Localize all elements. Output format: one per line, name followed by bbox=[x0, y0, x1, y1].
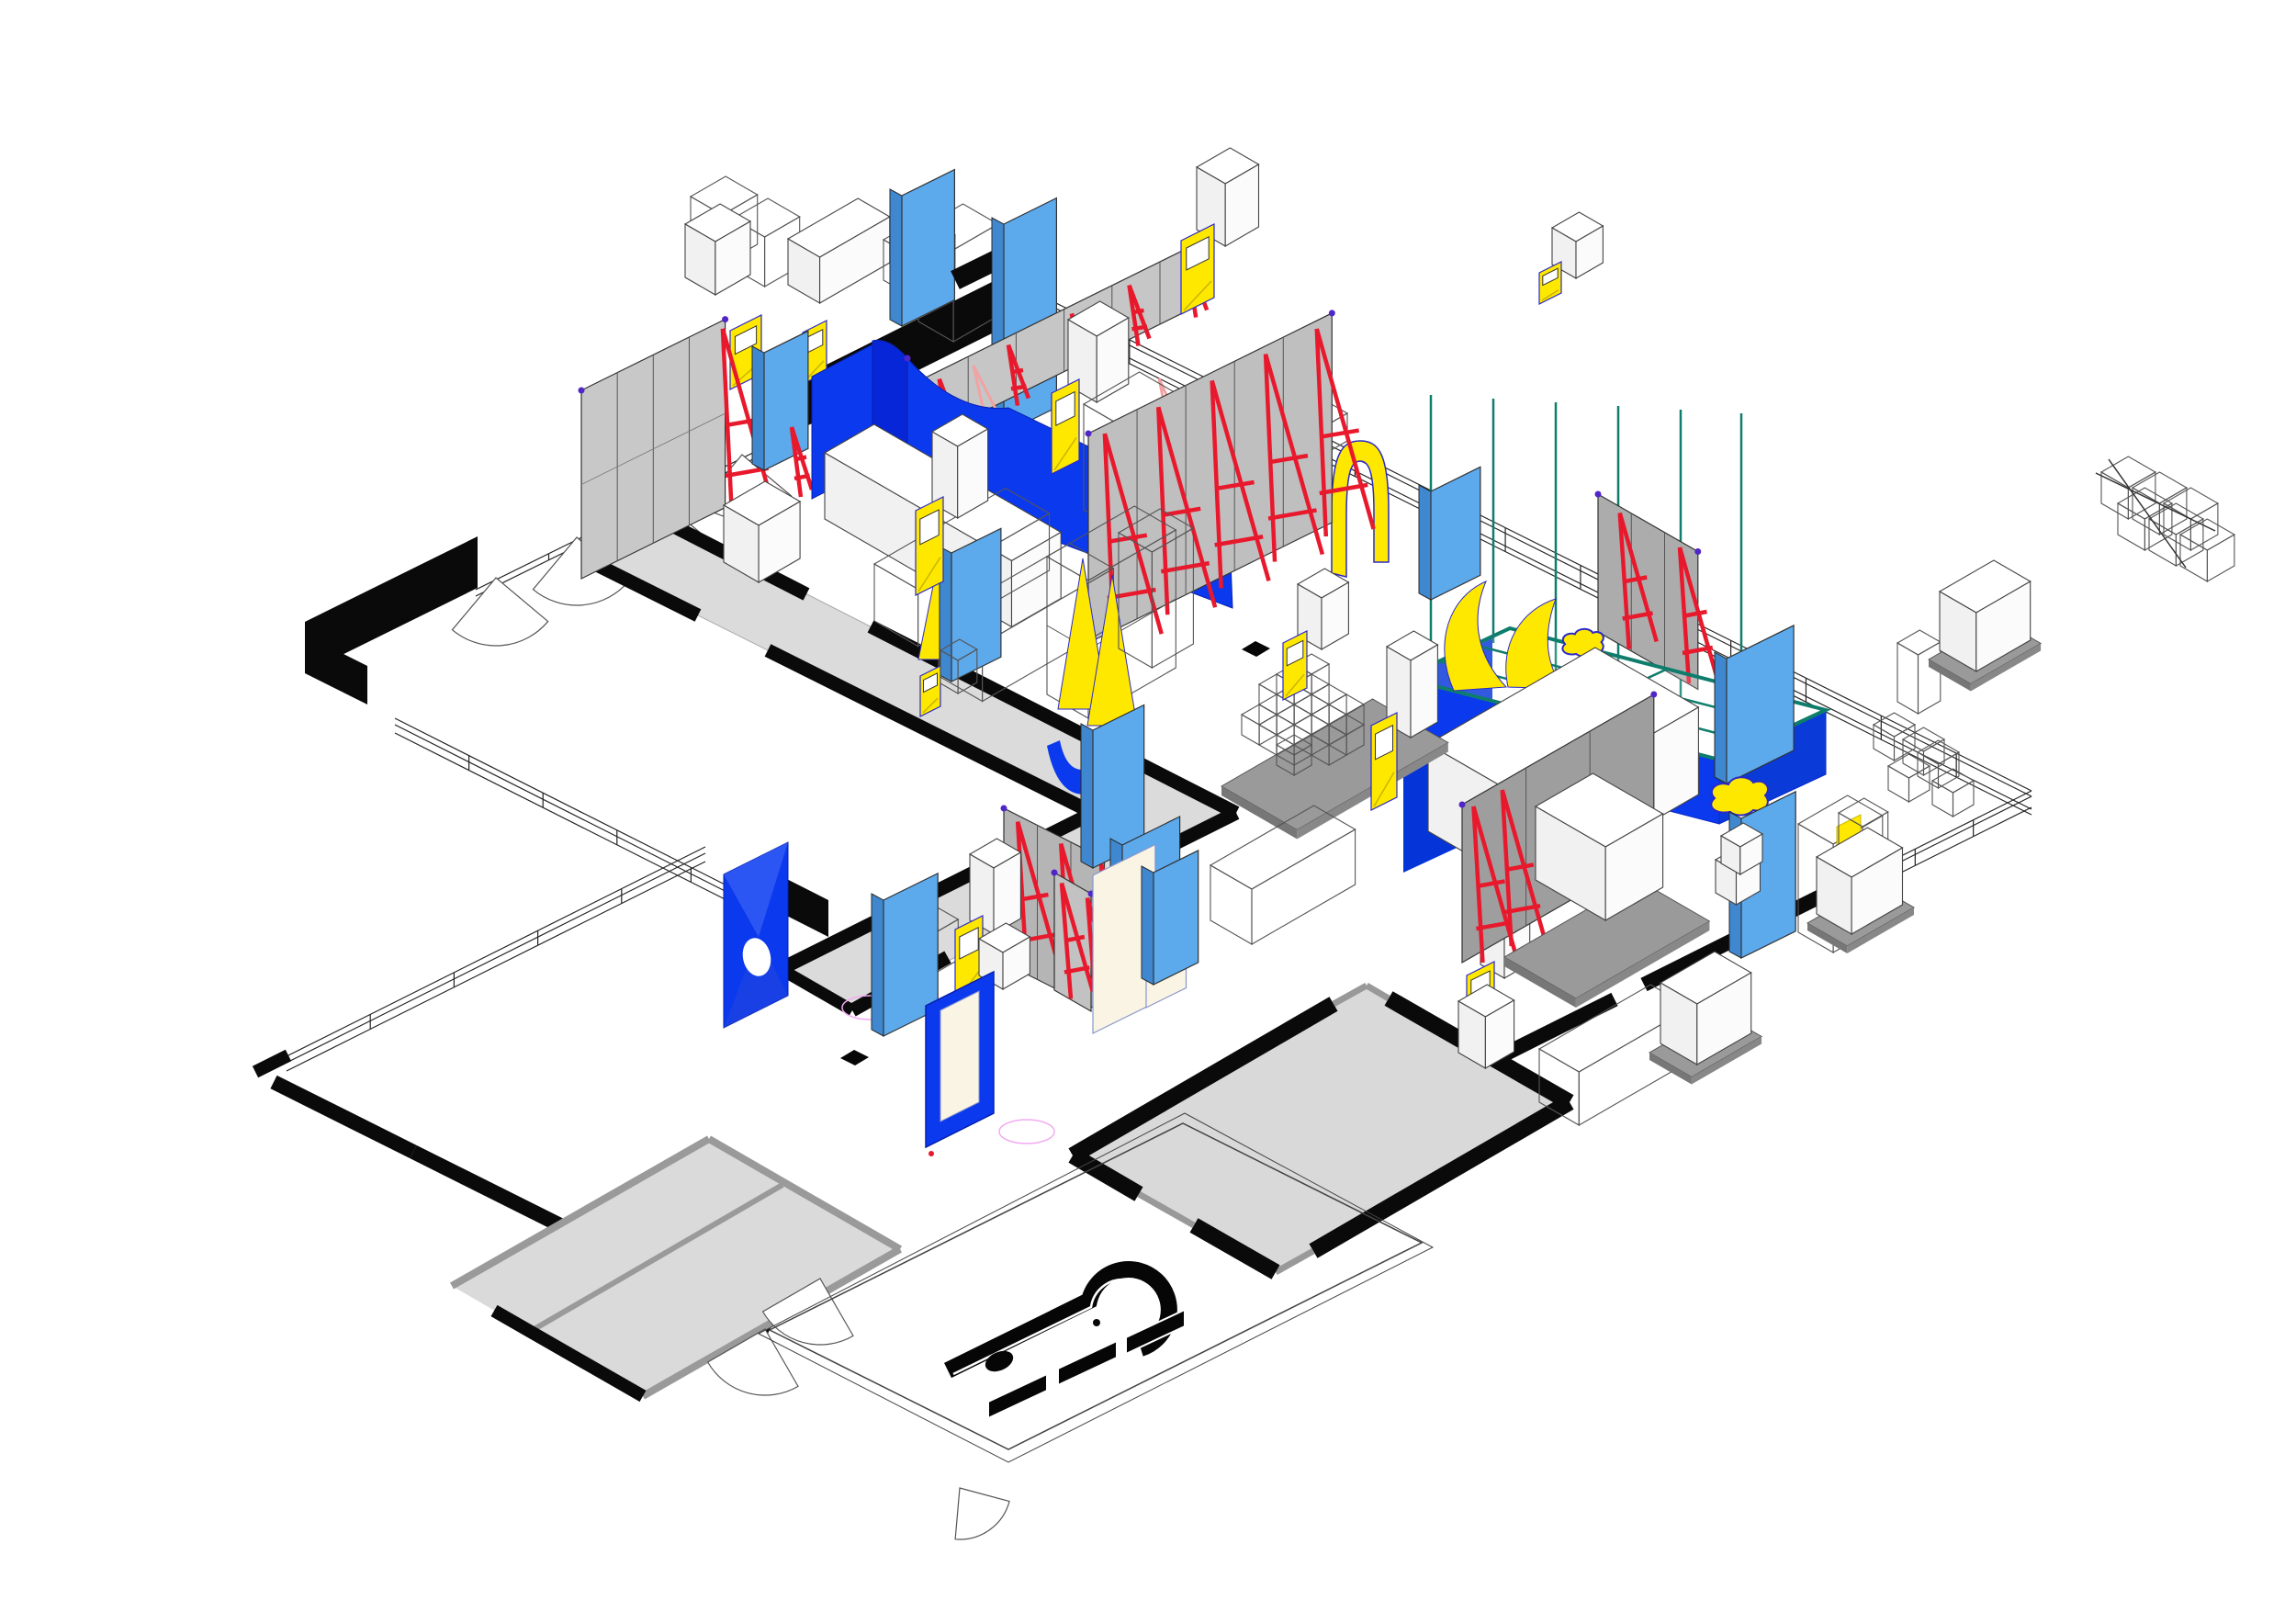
isometric-floor-plan-stage bbox=[0, 0, 2296, 1623]
crate-pile bbox=[1242, 715, 1259, 745]
sky-panel bbox=[872, 894, 884, 1036]
sky-panel-tall bbox=[890, 189, 902, 326]
red-truss bbox=[794, 476, 810, 479]
shelf-wireframe bbox=[2180, 519, 2234, 550]
shelf-wireframe bbox=[2133, 472, 2187, 503]
fence-behind-banner-truss bbox=[1134, 310, 1144, 312]
entry-room-floor bbox=[452, 1139, 900, 1396]
shelf-wireframe bbox=[2118, 503, 2144, 550]
shelf-wireframe bbox=[2101, 472, 2128, 519]
wing-window-wall bbox=[287, 847, 705, 1056]
sky-panel bbox=[1715, 652, 1727, 783]
kiosk-back-box bbox=[1411, 645, 1437, 738]
sky-panel bbox=[1142, 866, 1154, 985]
sideboard-wireframe bbox=[1210, 865, 1252, 944]
red-mark bbox=[929, 1151, 934, 1156]
sw-window-wall bbox=[395, 733, 765, 919]
exhibition-axonometric-drawing bbox=[0, 0, 2296, 1623]
corner-node bbox=[1694, 548, 1701, 555]
wall-wing-w bbox=[274, 1082, 413, 1152]
sw-window-wall bbox=[395, 718, 765, 905]
yellow-arch bbox=[1332, 441, 1389, 577]
stool-wireframe-tall bbox=[1897, 643, 1919, 714]
corner-node bbox=[579, 388, 585, 394]
wing-window-wall bbox=[287, 853, 705, 1063]
corner-node bbox=[1329, 310, 1335, 316]
terrace-curved-wall bbox=[948, 1269, 1169, 1370]
red-truss bbox=[796, 457, 806, 459]
sky-panel-tall bbox=[902, 170, 954, 326]
sw-window-wall bbox=[395, 725, 765, 911]
sky-panel bbox=[1081, 724, 1093, 868]
floor-ellipse bbox=[999, 1120, 1054, 1144]
stool-wireframe-tall bbox=[1919, 642, 1941, 714]
corner-node bbox=[1052, 870, 1058, 876]
stool-wireframe bbox=[1903, 739, 1924, 775]
stool-wireframe bbox=[1888, 766, 1909, 802]
fence-behind-banner-truss bbox=[1013, 370, 1023, 372]
floor-diamond-mark bbox=[840, 1050, 869, 1065]
door-fan bbox=[955, 1488, 1009, 1539]
wing-window-wall bbox=[287, 862, 705, 1071]
stool-wireframe bbox=[1874, 725, 1895, 761]
sky-panel bbox=[1154, 851, 1199, 985]
corner-node bbox=[1459, 802, 1466, 808]
banner-node bbox=[905, 355, 911, 362]
corner-node bbox=[1001, 806, 1007, 812]
stool-wireframe-tall bbox=[1897, 630, 1941, 655]
fence-behind-banner-truss bbox=[1011, 387, 1027, 389]
terrace-bench bbox=[1058, 1341, 1117, 1385]
stool-wireframe bbox=[1909, 766, 1930, 802]
sky-panel bbox=[764, 331, 808, 470]
stool-wireframe bbox=[1953, 781, 1975, 817]
shelf-rail bbox=[2109, 459, 2186, 568]
sky-panel bbox=[1419, 485, 1431, 600]
sky-panel-tall bbox=[1004, 198, 1056, 434]
shelf-wireframe bbox=[2207, 535, 2234, 581]
corner-node bbox=[722, 316, 728, 322]
blue-door-frame-inner bbox=[940, 991, 979, 1121]
sideboard-wireframe bbox=[1252, 829, 1356, 944]
truss-pair-fence bbox=[1054, 873, 1091, 1011]
terrace-dot bbox=[1093, 1319, 1100, 1326]
corner-node bbox=[1650, 692, 1657, 698]
corner-node bbox=[1595, 491, 1602, 498]
sky-panel bbox=[951, 528, 1001, 682]
sky-panel bbox=[752, 346, 764, 470]
shelf-wireframe bbox=[2149, 503, 2203, 535]
floor-diamond-mark bbox=[1242, 641, 1270, 657]
fence-behind-banner-truss bbox=[1132, 327, 1148, 330]
wall-wing-corner bbox=[255, 1055, 288, 1072]
corner-node bbox=[1086, 431, 1092, 437]
sky-panel bbox=[1431, 467, 1480, 600]
terrace-bench bbox=[988, 1374, 1047, 1418]
